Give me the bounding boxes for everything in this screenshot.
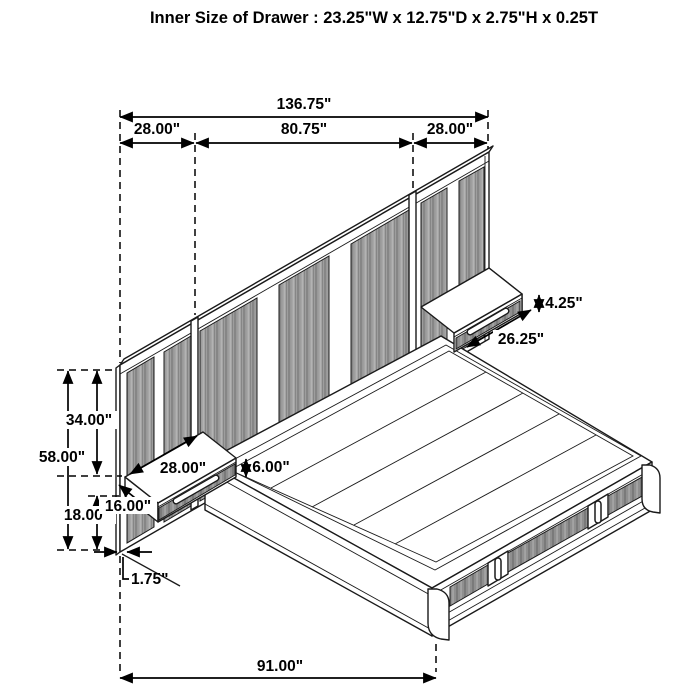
dim-label-panel-top-to-nightstand: 34.00"	[66, 412, 112, 429]
bed-foot-corner-post	[428, 589, 449, 640]
dim-label-drawer-front-width: 26.25"	[498, 331, 544, 348]
page-title: Inner Size of Drawer : 23.25"W x 12.75"D…	[150, 9, 598, 27]
dim-label-panel-height: 58.00"	[39, 449, 85, 466]
dim-label-left-panel-width: 28.00"	[134, 121, 180, 138]
dim-label-nightstand-width: 28.00"	[160, 460, 206, 477]
dim-label-panel-thickness: 1.75"	[131, 571, 169, 588]
dim-label-nightstand-depth: 16.00"	[105, 498, 151, 515]
dim-label-center-panel-width: 80.75"	[281, 121, 327, 138]
dim-label-right-panel-width: 28.00"	[427, 121, 473, 138]
bed-right-corner-post	[642, 465, 660, 513]
dim-label-bed-length: 91.00"	[257, 658, 303, 675]
dim-label-drawer-front-height: 4.25"	[545, 295, 583, 312]
dim-label-overall-width: 136.75"	[277, 96, 332, 113]
dim-label-nightstand-height: 6.00"	[252, 459, 290, 476]
diagram-canvas: 136.75" 28.00" 80.75" 28.00" 58.00" 34.0…	[0, 0, 700, 700]
dimension-diagram: 136.75" 28.00" 80.75" 28.00" 58.00" 34.0…	[0, 0, 700, 700]
dim-leader-panel-thickness	[123, 557, 129, 579]
